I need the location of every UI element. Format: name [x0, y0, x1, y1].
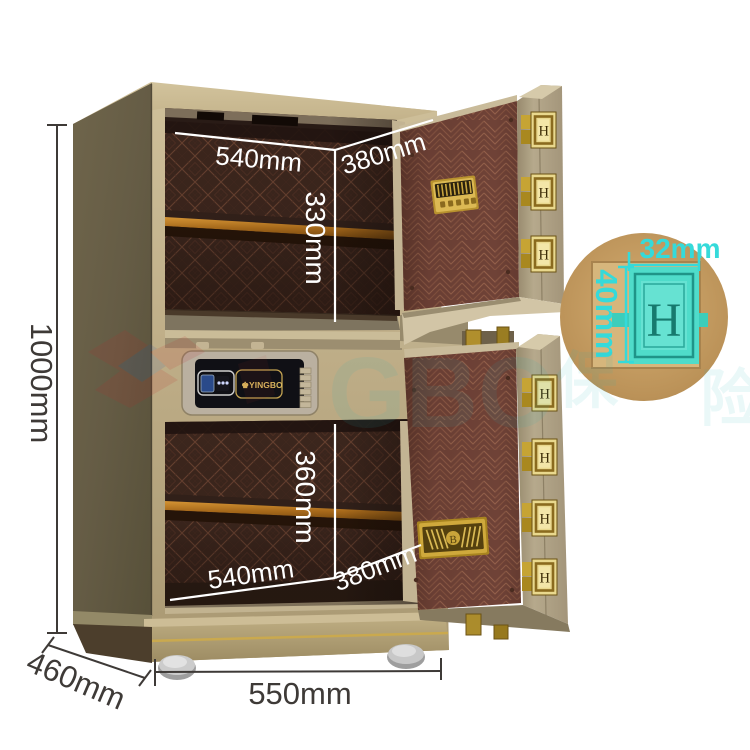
svg-text:360mm: 360mm — [290, 450, 321, 543]
svg-text:40mm: 40mm — [589, 269, 624, 359]
svg-text:保: 保 — [556, 347, 619, 416]
svg-text:H: H — [647, 294, 682, 347]
svg-text:550mm: 550mm — [248, 676, 351, 711]
svg-text:330mm: 330mm — [300, 191, 331, 284]
svg-text:32mm: 32mm — [640, 233, 721, 264]
svg-text:GBO: GBO — [328, 337, 556, 449]
svg-text:险: 险 — [700, 365, 750, 434]
svg-text:B: B — [449, 534, 457, 546]
svg-text:1000mm: 1000mm — [24, 323, 59, 444]
